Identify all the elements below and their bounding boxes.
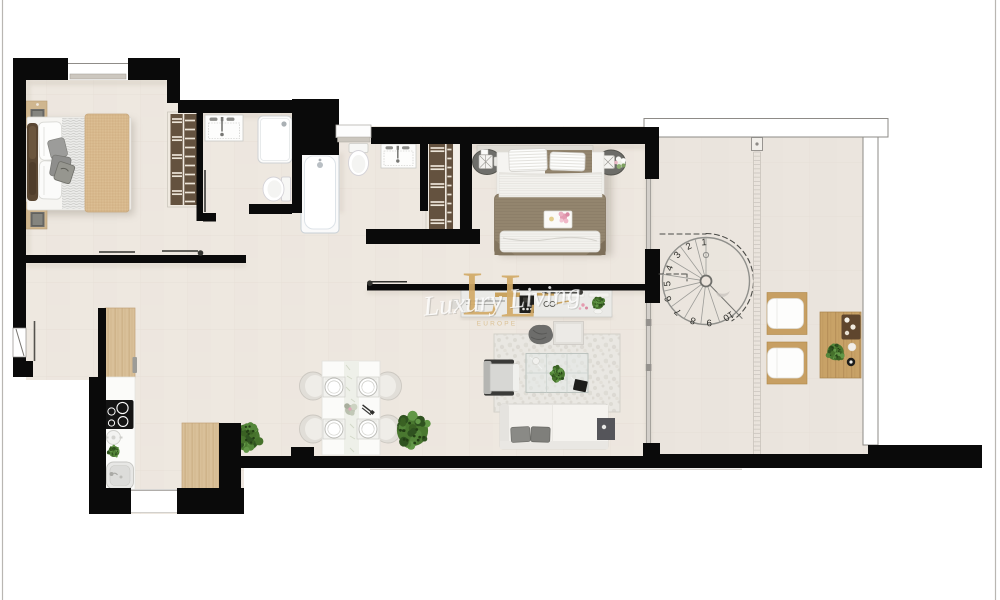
svg-text:1: 1 — [701, 237, 707, 248]
svg-text:5: 5 — [662, 281, 673, 287]
svg-text:9: 9 — [706, 317, 712, 328]
svg-text:EUROPE: EUROPE — [477, 321, 518, 328]
